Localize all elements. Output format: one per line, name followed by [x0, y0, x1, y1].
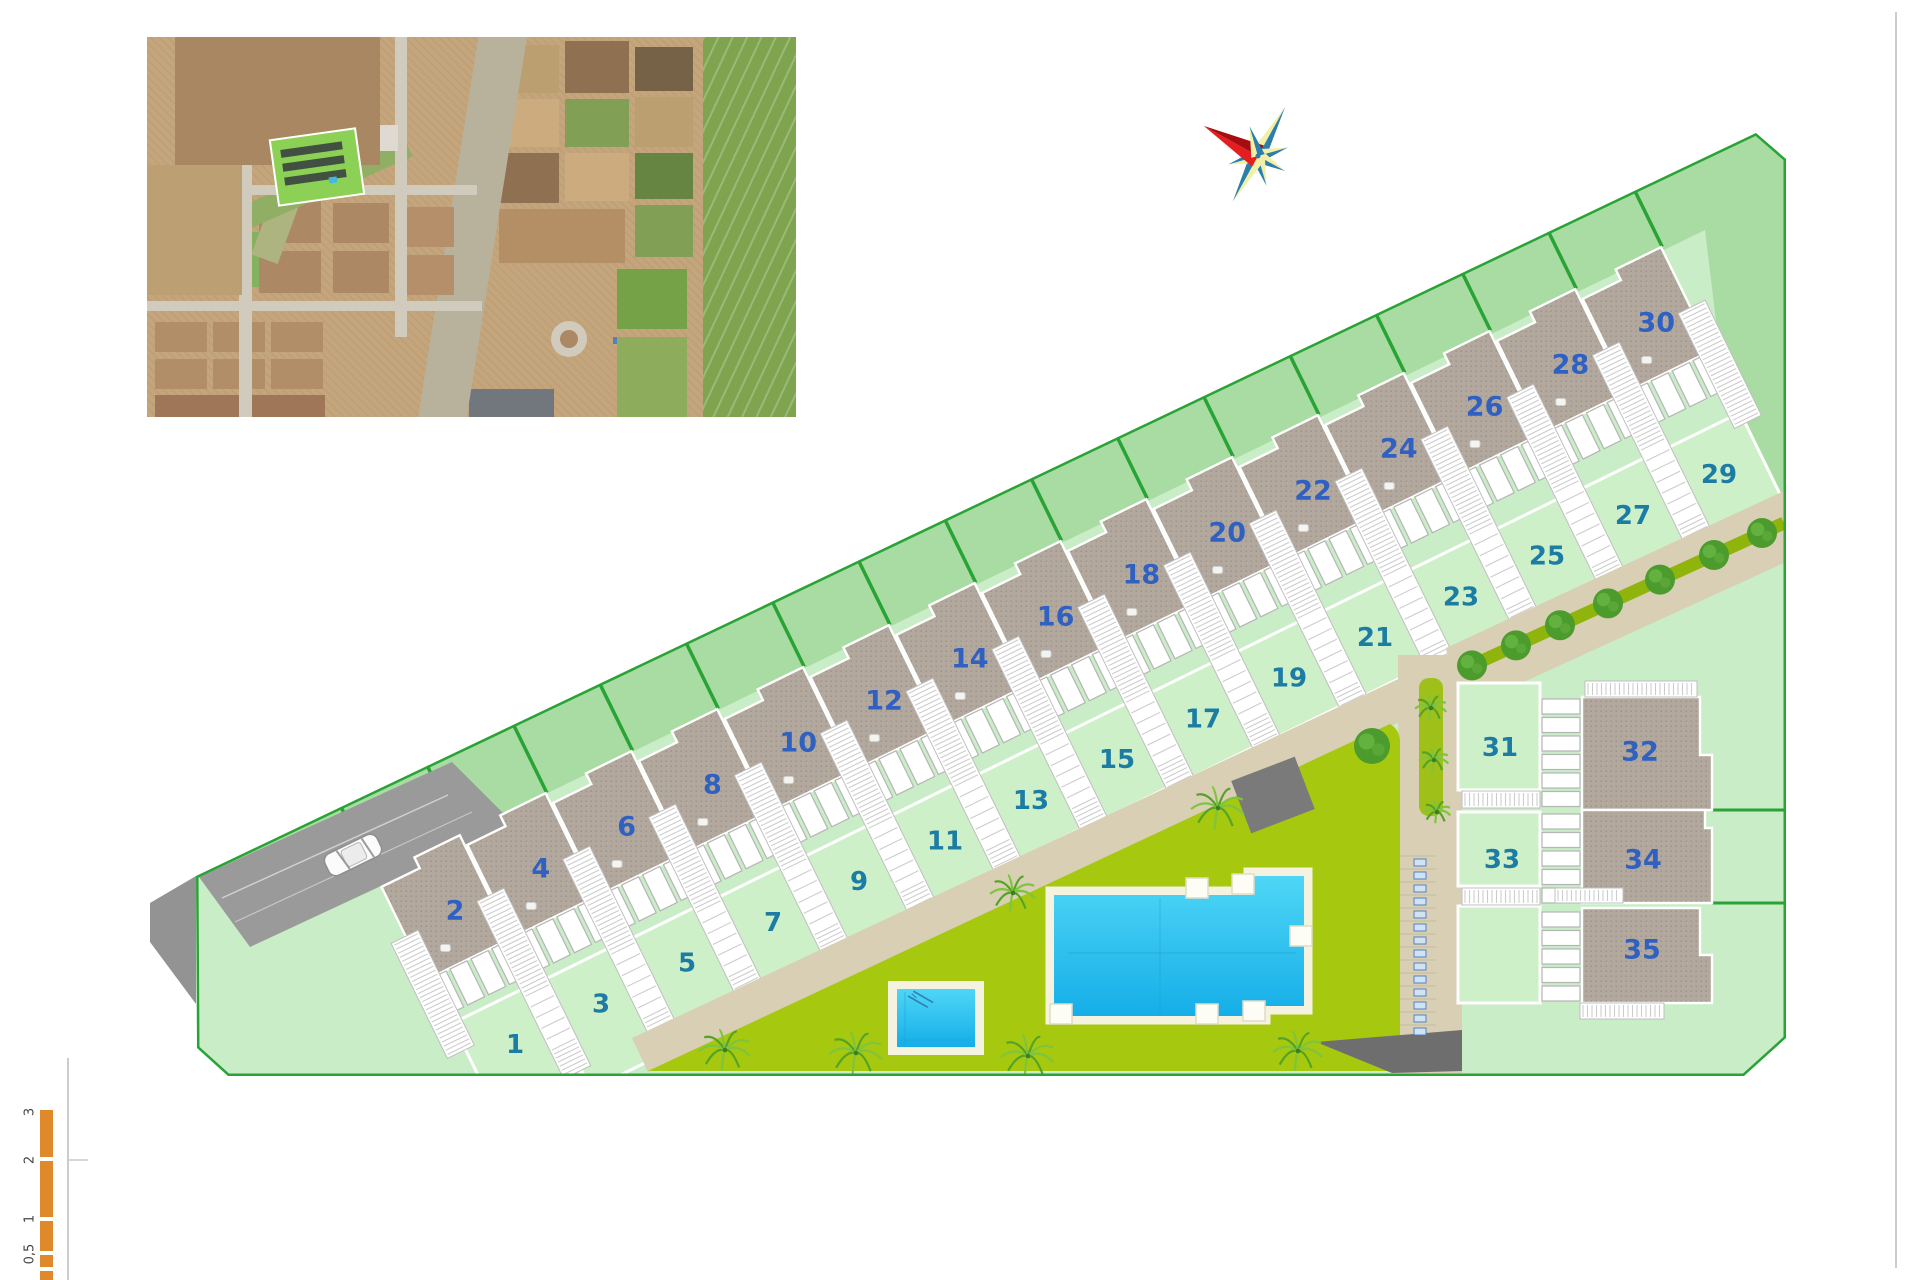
plot-number-garden: 1: [506, 1030, 524, 1060]
parked-bike-icon: [1414, 976, 1426, 983]
plot-number-roof: 6: [617, 812, 636, 843]
plot-number-roof: 32: [1621, 737, 1659, 768]
parked-bike-icon: [1414, 950, 1426, 957]
parked-bike-icon: [1414, 885, 1426, 892]
plot-number-garden: 3: [592, 989, 610, 1019]
plot-number-garden: 11: [927, 827, 963, 857]
plot-number-garden: 33: [1484, 845, 1520, 875]
stair-core: [1580, 1003, 1664, 1019]
site-plan-page: 2468101214161820222426283013579111315171…: [0, 0, 1920, 1280]
pool-platform: [1186, 878, 1208, 898]
terrace-railing: [1542, 851, 1580, 866]
plot-number-garden: 15: [1099, 745, 1135, 775]
scale-label: 3: [23, 1108, 38, 1116]
plot-number-roof: 14: [951, 644, 989, 675]
scale-bar: 3210,5: [23, 1108, 54, 1280]
round-tree-icon: [1545, 610, 1575, 640]
parked-bike-icon: [1414, 924, 1426, 931]
plot-number-roof: 16: [1037, 602, 1075, 633]
plot-number-garden: 25: [1529, 542, 1565, 572]
plot-number-roof: 30: [1637, 308, 1675, 339]
terrace-railing: [1542, 870, 1580, 885]
pool-platform: [1196, 1004, 1218, 1024]
terrace-railing: [1542, 814, 1580, 829]
terrace-railing: [1542, 931, 1580, 946]
terrace-railing: [1542, 949, 1580, 964]
plot-number-roof: 20: [1208, 518, 1246, 549]
plot-number-garden: 31: [1482, 733, 1518, 763]
scale-label: 0,5: [23, 1244, 38, 1265]
plot-number-roof: 8: [703, 770, 722, 801]
plot-number-garden: 7: [764, 908, 782, 938]
terrace-railing: [1542, 968, 1580, 983]
parked-bike-icon: [1414, 1015, 1426, 1022]
round-tree-icon: [1747, 518, 1777, 548]
parked-bike-icon: [1414, 963, 1426, 970]
plot-number-garden: 27: [1615, 501, 1651, 531]
round-tree-icon: [1645, 565, 1675, 595]
plot-number-roof: 2: [446, 896, 465, 927]
median-strip: [1419, 678, 1443, 816]
plot-number-garden: 9: [850, 867, 868, 897]
aerial-haze-overlay: [147, 37, 796, 417]
plot-number-garden: 5: [678, 949, 696, 979]
terrace-railing: [1542, 912, 1580, 927]
parked-bike-icon: [1414, 898, 1426, 905]
pool-platform: [1290, 926, 1312, 946]
plot-number-roof: 34: [1624, 845, 1662, 876]
parked-bike-icon: [1414, 859, 1426, 866]
plot-number-garden: 13: [1013, 786, 1049, 816]
terrace-railing: [1542, 773, 1580, 788]
garden-plot: [1458, 906, 1540, 1003]
round-tree-icon: [1354, 728, 1390, 764]
parked-bike-icon: [1414, 1002, 1426, 1009]
plot-number-garden: 23: [1443, 582, 1479, 612]
terrace-railing: [1542, 736, 1580, 751]
plot-number-roof: 24: [1380, 434, 1418, 465]
main-swimming-pool: [1054, 876, 1304, 1016]
plot-number-roof: 22: [1294, 476, 1332, 507]
plot-number-roof: 10: [779, 728, 817, 759]
plot-number-roof: 26: [1466, 392, 1504, 423]
scale-label: 2: [23, 1156, 38, 1164]
plot-number-roof: 12: [865, 686, 903, 717]
parked-bike-icon: [1414, 911, 1426, 918]
compass-rose-icon: [1204, 107, 1288, 202]
terrace-railing: [1542, 833, 1580, 848]
plot-number-roof: 35: [1623, 935, 1661, 966]
scale-label: 1: [23, 1215, 38, 1223]
pool-platform: [1232, 874, 1254, 894]
terrace-railing: [1542, 699, 1580, 714]
parked-bike-icon: [1414, 1028, 1426, 1035]
plot-number-garden: 21: [1357, 623, 1393, 653]
plot-number-garden: 19: [1271, 664, 1307, 694]
terrace-railing: [1542, 755, 1580, 770]
round-tree-icon: [1593, 588, 1623, 618]
plot-number-garden: 17: [1185, 704, 1221, 734]
plot-number-roof: 18: [1123, 560, 1161, 591]
plot-number-roof: 28: [1552, 350, 1590, 381]
aerial-photo: [147, 37, 796, 417]
parked-bike-icon: [1414, 872, 1426, 879]
terrace-railing: [1542, 792, 1580, 807]
terrace-railing: [1542, 986, 1580, 1001]
plot-number-garden: 29: [1701, 460, 1737, 490]
pool-platform: [1243, 1001, 1265, 1021]
round-tree-icon: [1501, 630, 1531, 660]
kids-swimming-pool: [897, 989, 975, 1047]
plot-number-roof: 4: [531, 854, 550, 885]
terrace-railing: [1542, 718, 1580, 733]
pool-platform: [1050, 1004, 1072, 1024]
round-tree-icon: [1699, 540, 1729, 570]
round-tree-icon: [1457, 650, 1487, 680]
street-stub: [150, 876, 196, 1004]
parked-bike-icon: [1414, 989, 1426, 996]
parked-bike-icon: [1414, 937, 1426, 944]
